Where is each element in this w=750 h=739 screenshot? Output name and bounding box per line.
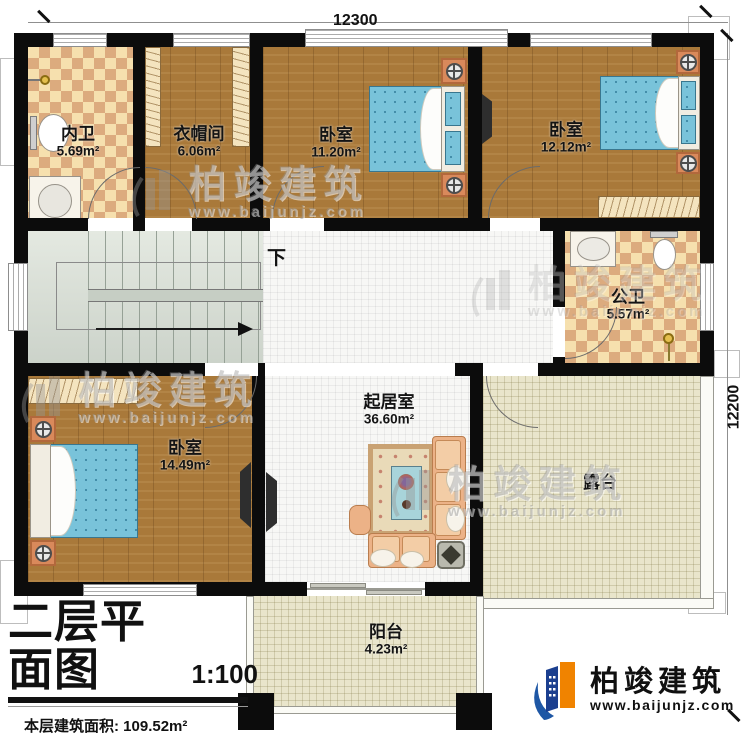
nightstand-compass-icon: [35, 545, 52, 562]
wall-mid2-d: [538, 363, 700, 376]
nightstand-compass-icon: [680, 155, 697, 172]
title-block: 二层平面图 1:100 本层建筑面积: 109.52m² 层高: 3.6m: [8, 598, 258, 739]
room-name: 衣帽间: [174, 126, 225, 144]
room-name: 起居室: [364, 394, 415, 412]
sofa-pillow: [446, 466, 465, 492]
sofa-pillow: [446, 506, 465, 532]
bedroom3-wardrobe: [28, 378, 138, 404]
dimension-tick: [37, 10, 50, 23]
wall-mid1-f: [540, 218, 700, 231]
wall-living-terrace: [470, 376, 483, 596]
room-area: 36.60m²: [364, 412, 415, 427]
gongwei-sink-basin: [577, 237, 610, 261]
title-underline-thick: [8, 697, 248, 703]
coffee-table-flowers: [398, 474, 414, 490]
plan-scale: 1:100: [192, 659, 259, 694]
gongwei-toilet-bowl: [653, 239, 676, 270]
hall-floor: [263, 231, 553, 363]
wall-mid2-a: [28, 363, 205, 376]
bedroom3-tv: [240, 462, 251, 528]
terrace-parapet-right: [700, 376, 714, 606]
bedroom1-pillow-bottom: [445, 131, 461, 165]
bedroom1-pillow-top: [445, 92, 461, 126]
room-area: 5.57m²: [607, 307, 650, 322]
floor-plan: 下 内卫 5.69m² 衣帽间 6.06m² 卧室 11.20m² 卧室 12.…: [0, 0, 750, 739]
company-logo: 柏竣建筑 www.baijunjz.com: [528, 656, 735, 724]
bedroom2-nightstand-bottom: [676, 152, 700, 174]
bedroom2-pillow-bottom: [681, 115, 696, 144]
neiwei-shower-icon: [40, 75, 50, 85]
room-name: 卧室: [160, 440, 210, 458]
stair-arrow-line: [96, 328, 240, 330]
window-top-1: [53, 33, 107, 47]
window-left-stairs: [8, 263, 28, 331]
wall-cloakroom-bedroom1: [250, 47, 263, 231]
wall-mid2-c: [455, 363, 483, 376]
bedroom3-nightstand-bottom: [30, 540, 56, 566]
neiwei-sink-basin: [38, 184, 72, 218]
window-right-gongwei: [700, 263, 714, 331]
window-top-bay: [305, 29, 508, 47]
room-name: 公卫: [607, 289, 650, 307]
wall-mid1-e: [468, 218, 490, 231]
room-name: 卧室: [311, 127, 361, 145]
wall-mid1-d: [324, 218, 468, 231]
room-label-neiwei: 内卫 5.69m²: [57, 126, 100, 159]
coffee-table-teapot: [402, 500, 411, 509]
room-label-bedroom3: 卧室 14.49m²: [160, 440, 210, 473]
living-armchair: [349, 505, 371, 535]
balcony-slider-leaf-1: [310, 583, 366, 588]
gongwei-drain-stem: [668, 343, 670, 361]
wall-mid1-c: [192, 218, 270, 231]
bedroom3-nightstand-top: [30, 416, 56, 442]
stair-arrow-head: [238, 322, 253, 336]
wall-mid1-a: [28, 218, 88, 231]
stair-down-label: 下: [267, 243, 286, 270]
wall-bedroom3-living: [252, 376, 265, 582]
wall-gongwei-left-upper: [553, 231, 565, 307]
stair-rail: [88, 289, 263, 302]
dimension-line-top: [28, 22, 728, 23]
room-label-balcony: 阳台 4.23m²: [365, 624, 408, 657]
logo-website: www.baijunjz.com: [590, 697, 735, 713]
title-underline-thin: [8, 706, 248, 707]
window-top-3: [530, 33, 652, 47]
nightstand-compass-icon: [446, 177, 463, 194]
room-name: 露台: [583, 474, 617, 492]
nightstand-compass-icon: [446, 63, 463, 80]
room-label-bedroom2: 卧室 12.12m²: [541, 122, 591, 155]
bedroom2-tv: [482, 94, 492, 144]
dimension-right-value: 12200: [725, 385, 743, 430]
gongwei-toilet-tank: [650, 231, 678, 238]
room-area: 5.69m²: [57, 144, 100, 159]
window-bottom-bedroom3: [83, 584, 197, 596]
terrace-parapet-bottom: [483, 598, 714, 609]
room-label-living: 起居室 36.60m²: [364, 394, 415, 427]
window-top-2: [173, 33, 250, 47]
logo-company-name: 柏竣建筑: [590, 667, 735, 697]
logo-tower-orange: [560, 662, 575, 708]
room-label-terrace: 露台: [583, 474, 617, 492]
bedroom3-headboard: [30, 444, 51, 538]
bedroom2-duvet: [655, 78, 679, 148]
gongwei-drain-icon: [663, 333, 674, 344]
logo-building-icon: [528, 656, 582, 724]
room-area: 11.20m²: [311, 145, 361, 160]
bedroom2-wardrobe: [598, 196, 700, 218]
floor-area-line: 本层建筑面积: 109.52m²: [24, 715, 258, 736]
room-area: 4.23m²: [365, 642, 408, 657]
bedroom2-pillow-top: [681, 81, 696, 110]
room-area: 12.12m²: [541, 140, 591, 155]
room-name: 卧室: [541, 122, 591, 140]
sofa-pillow: [370, 549, 396, 567]
room-label-bedroom1: 卧室 11.20m²: [311, 127, 361, 160]
plan-title: 二层平面图: [8, 598, 188, 694]
neiwei-toilet-tank: [30, 116, 37, 150]
nightstand-compass-icon: [680, 54, 697, 71]
room-name: 内卫: [57, 126, 100, 144]
sofa-pillow: [400, 551, 424, 568]
logo-text: 柏竣建筑 www.baijunjz.com: [590, 667, 735, 713]
room-area: 14.49m²: [160, 458, 210, 473]
room-label-gongwei: 公卫 5.57m²: [607, 289, 650, 322]
bedroom1-nightstand-top: [441, 58, 467, 84]
balcony-column-right: [456, 693, 492, 730]
balcony-parapet-bottom: [246, 706, 484, 714]
wall-mid2-b: [258, 363, 265, 376]
bedroom1-nightstand-bottom: [441, 173, 467, 197]
nightstand-compass-icon: [35, 421, 52, 438]
wall-bedroom1-bedroom2: [468, 47, 482, 231]
bedroom2-nightstand-top: [676, 50, 700, 74]
room-label-cloakroom: 衣帽间 6.06m²: [174, 126, 225, 159]
room-name: 阳台: [365, 624, 408, 642]
balcony-slider-leaf-2: [366, 590, 422, 595]
dimension-top-value: 12300: [333, 12, 378, 30]
cloakroom-wardrobe-left: [145, 47, 161, 147]
dimension-line-right: [727, 33, 728, 615]
living-tv: [266, 472, 277, 532]
wall-mid1-b: [133, 218, 145, 231]
bedroom1-duvet: [420, 88, 442, 170]
room-area: 6.06m²: [174, 144, 225, 159]
cloakroom-wardrobe-right: [232, 47, 250, 147]
logo-tower-blue: [546, 666, 558, 712]
